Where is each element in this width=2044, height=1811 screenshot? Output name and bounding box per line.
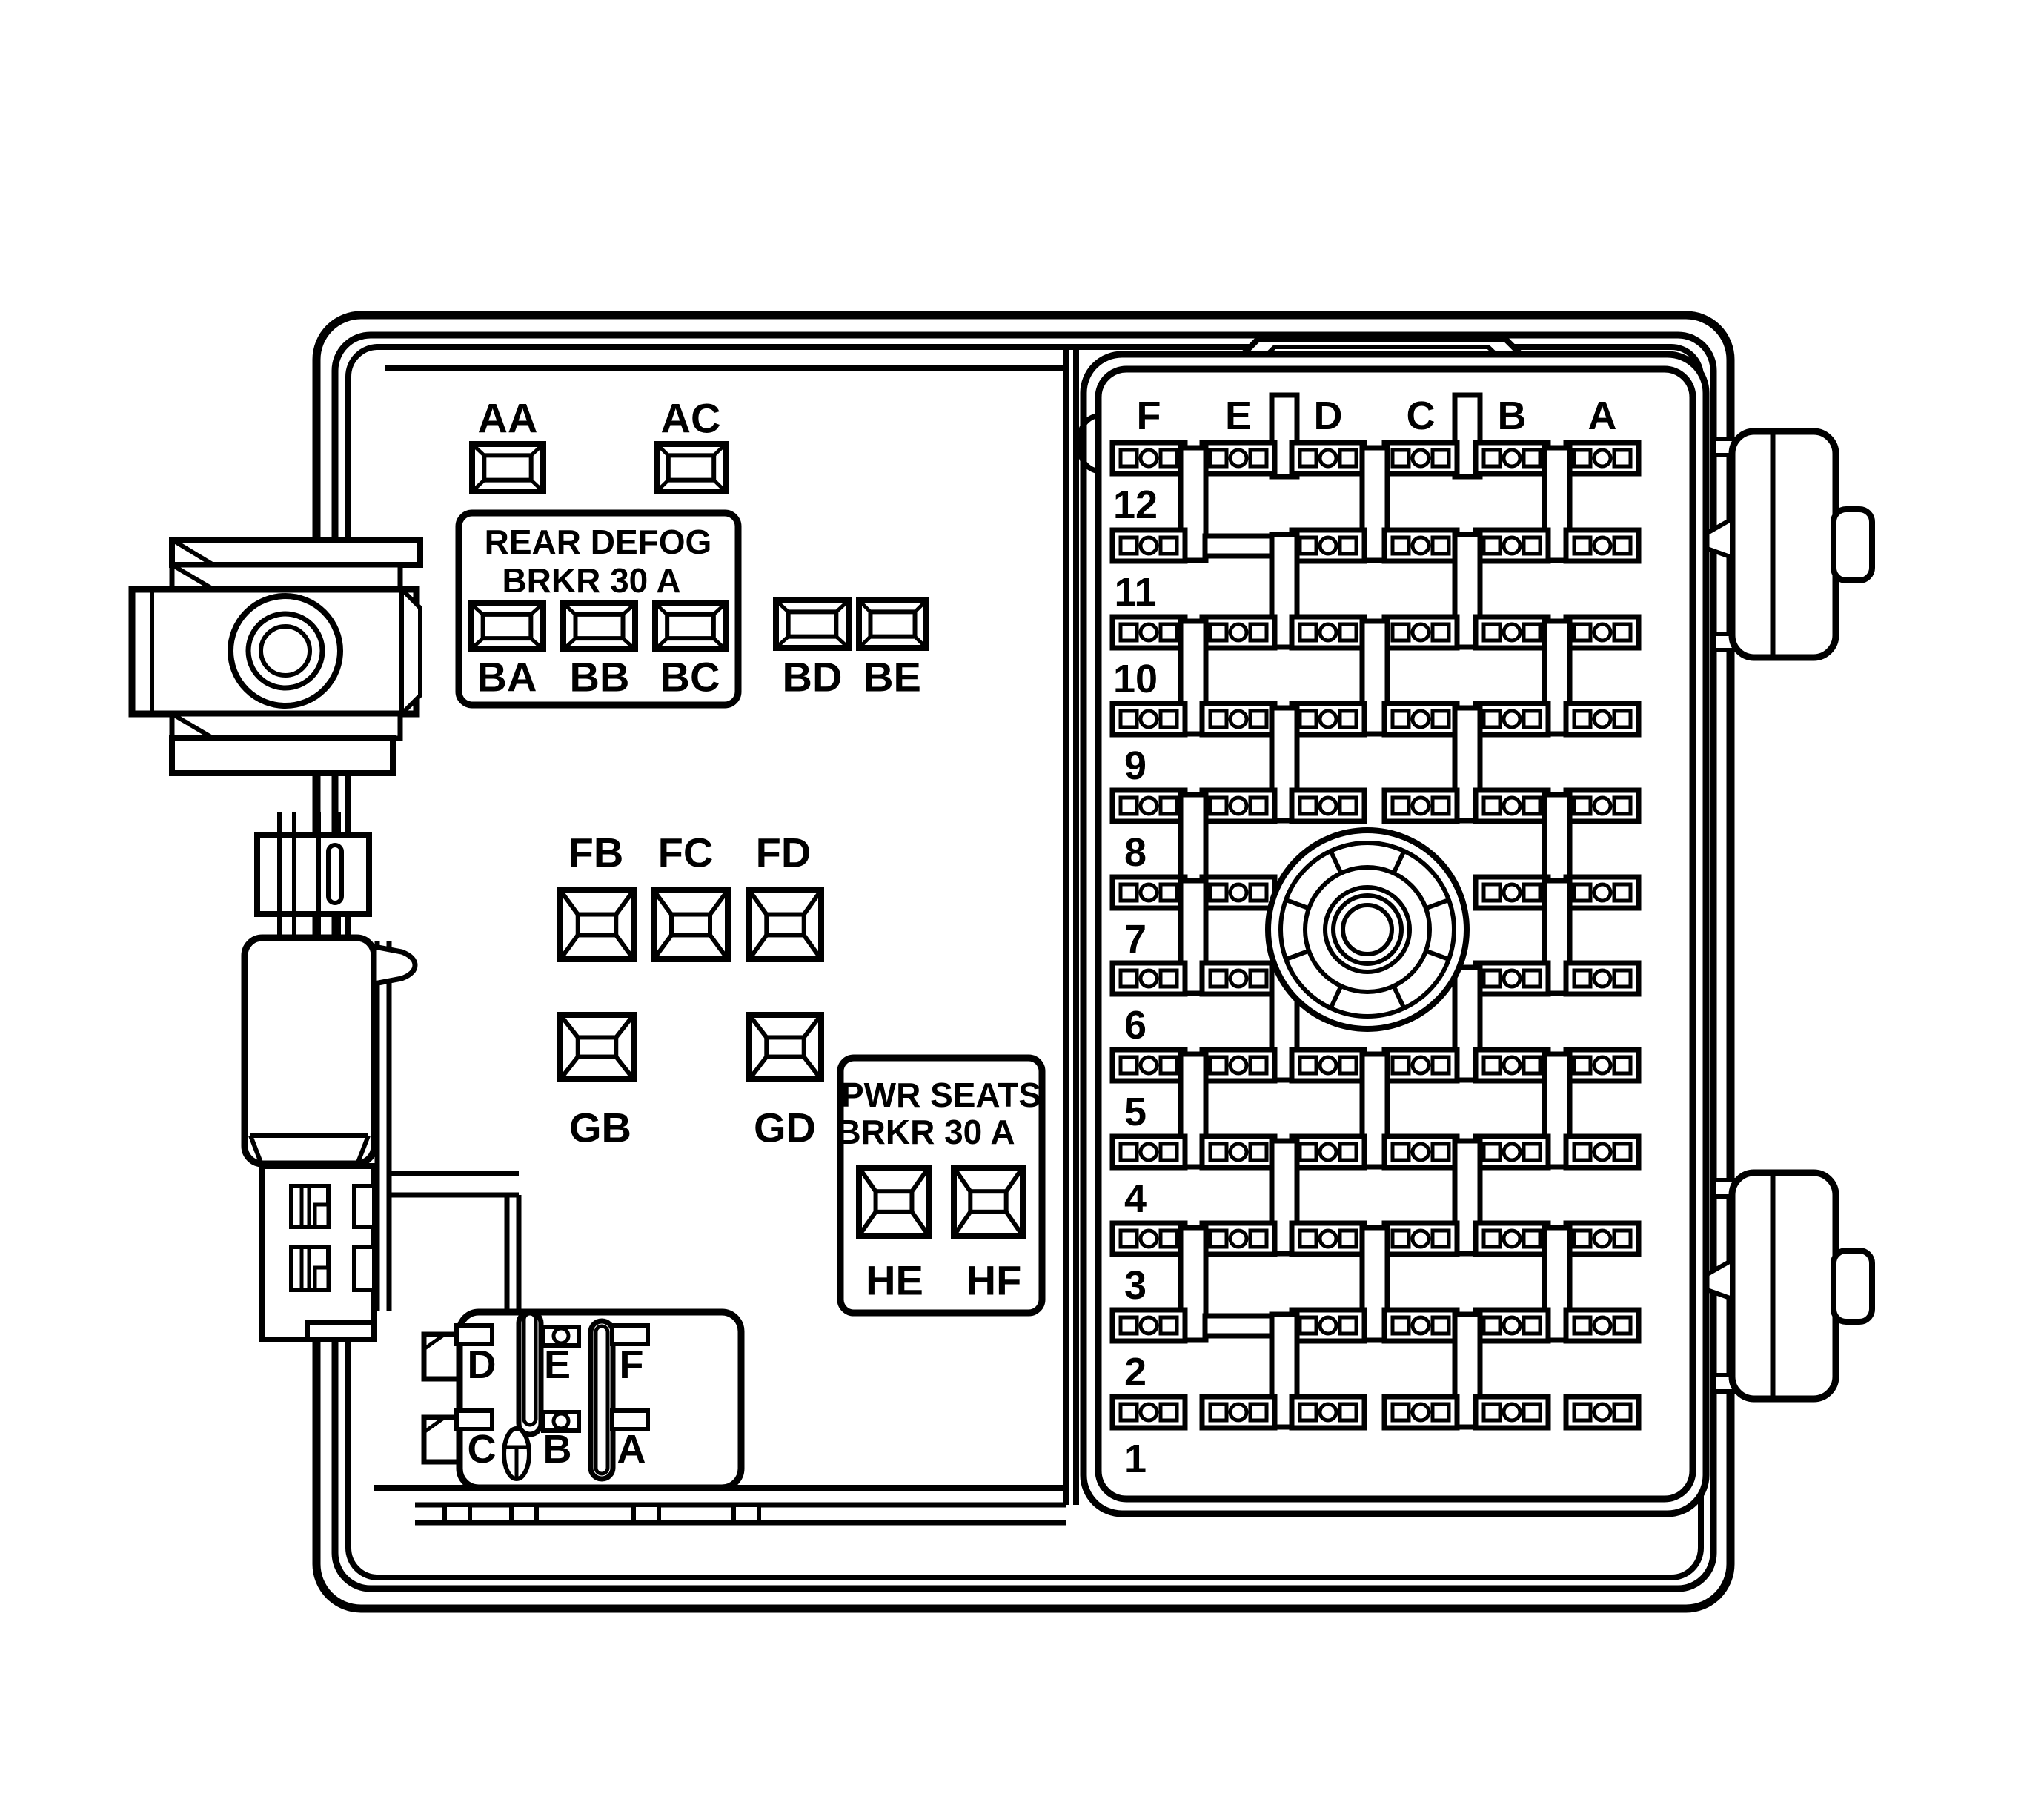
fuse-end [1614,1057,1630,1073]
fuse-end [1210,798,1227,814]
fuse-end [1524,537,1540,554]
fuse-end [1393,1231,1409,1247]
fuse-end [1121,798,1137,814]
terminal-subsquare [315,1205,328,1227]
relay-label: BA [477,654,537,701]
connector-def: DEFCBA [424,1312,741,1488]
fuse-symbol [1202,703,1275,735]
bolt-boss-icon [1268,830,1467,1029]
fuse-element [1504,970,1520,987]
fuse-column-label: F [1137,394,1161,438]
fuse-column-label: D [1314,394,1343,438]
fuse-element [1594,798,1610,814]
fuse-element [1141,624,1157,640]
relay-HE: HE [859,1168,929,1304]
fuse-end [1393,624,1409,640]
fuse-end [1210,884,1227,901]
fuse-end [1484,1404,1500,1420]
fuse-element [1504,1144,1520,1160]
fuse-element [1230,798,1247,814]
fuse-element [1320,537,1336,554]
fuse-element [1594,1404,1610,1420]
fuse-end [1161,1144,1177,1160]
fuse-end [1300,1057,1316,1073]
latch-body [1732,431,1836,658]
rear-defog-title-line1: REAR DEFOG [485,523,712,561]
fuse-element [1230,624,1247,640]
relay-label: GD [754,1105,816,1151]
fuse-symbol [1384,790,1457,821]
fuse-element [1141,1404,1157,1420]
fuse-row-label: 5 [1124,1090,1147,1134]
mounting-bracket [132,540,420,773]
fuse-symbol [1384,443,1457,474]
fuse-end [1340,537,1356,554]
fuse-element [1320,711,1336,727]
fuse-end [1121,1231,1137,1247]
fuse-end [1121,711,1137,727]
fuse-end [1250,884,1267,901]
fuse-symbol [1202,617,1275,648]
relay-inner [870,612,915,636]
relay-BD: BD [776,600,849,701]
fuse-end [1524,1404,1540,1420]
relay-label: FB [568,830,624,876]
fuse-symbol [1112,703,1185,735]
terminal-block-tab [308,1322,373,1340]
fuse-end [1393,537,1409,554]
fuse-symbol [1202,1050,1275,1081]
fuse-end [1524,624,1540,640]
fuse-end [1210,1404,1227,1420]
blank-slot [1205,536,1272,556]
fuse-end [1121,624,1137,640]
fuse-symbol [1112,1397,1185,1428]
fuse-element [1141,450,1157,466]
fuse-end [1614,1144,1630,1160]
fuse-symbol [1292,617,1364,648]
fuse-symbol [1384,1136,1457,1168]
latch-body [1732,1173,1836,1399]
relay-BB: BB [563,603,635,701]
fuse-row-label: 1 [1124,1437,1147,1481]
fuse-symbol [1476,1050,1548,1081]
fuse-row-label: 9 [1124,744,1147,788]
fuse-end [1300,1404,1316,1420]
fuse-end [1574,798,1590,814]
fuse-end [1484,624,1500,640]
fuse-element [1413,1231,1429,1247]
fuse-symbol [1202,1223,1275,1254]
fuse-end [1340,1404,1356,1420]
fuse-end [1210,711,1227,727]
fuse-element [1230,1144,1247,1160]
fuse-end [1300,798,1316,814]
fuse-symbol [1384,1397,1457,1428]
fuse-end [1614,1404,1630,1420]
fuse-end [1161,624,1177,640]
fuse-symbol [1476,617,1548,648]
relay-inner [671,915,710,936]
bottom-band-tab [445,1505,470,1523]
fuse-symbol [1112,530,1185,561]
fuse-end [1484,450,1500,466]
fuse-end [1161,1231,1177,1247]
fuse-end [1574,1144,1590,1160]
fuse-element [1594,884,1610,901]
relay-label: BB [570,654,630,701]
fuse-end [1574,1317,1590,1334]
boss-ring [1343,905,1392,954]
pwr-seats-title-line1: PWR SEATS [841,1076,1041,1114]
relay-label: HF [966,1257,1022,1304]
fuse-element [1141,1057,1157,1073]
fuse-end [1121,1404,1137,1420]
fuse-end [1300,624,1316,640]
fuse-element [1504,1317,1520,1334]
fuse-element [1141,711,1157,727]
fuse-element [1594,1231,1610,1247]
fuse-row-label: 12 [1113,483,1158,527]
fuse-element [1230,884,1247,901]
fuse-element [1413,1057,1429,1073]
slat-block [257,835,369,914]
fuse-symbol [1566,963,1639,994]
fuse-end [1300,1144,1316,1160]
terminal-subsquare [315,1268,328,1290]
fuse-end [1210,1144,1227,1160]
fuse-element [1504,798,1520,814]
connector-letter: E [544,1342,571,1387]
fuse-end [1433,1231,1449,1247]
fuse-row-label: 4 [1124,1176,1147,1221]
fuse-symbol [1112,790,1185,821]
fuse-element [1230,1057,1247,1073]
fuse-end [1433,450,1449,466]
fuse-end [1524,1317,1540,1334]
fuse-element [1504,1231,1520,1247]
relay-label: AA [478,395,538,442]
fuse-end [1250,711,1267,727]
relay-inner [578,915,616,936]
relay-BE: BE [859,600,926,701]
fuse-end [1574,970,1590,987]
fuse-symbol [1476,443,1548,474]
fuse-end [1614,450,1630,466]
relay-label: FC [658,830,714,876]
fuse-symbol [1384,1050,1457,1081]
fuse-end [1433,1317,1449,1334]
fuse-symbol [1566,703,1639,735]
fuse-end [1574,624,1590,640]
fuse-symbol [1292,530,1364,561]
fuse-symbol [1202,790,1275,821]
relay-label: BD [783,654,843,701]
fuse-symbol [1566,1136,1639,1168]
relay-inner [970,1191,1006,1212]
fuse-end [1433,624,1449,640]
fuse-element [1504,624,1520,640]
fuse-element [1413,1144,1429,1160]
fuse-end [1340,1144,1356,1160]
fuse-end [1574,884,1590,901]
fuse-panel: FEDCBA121110987654321 [1079,354,1706,1514]
fuse-symbol [1112,1310,1185,1341]
relay-inner [789,612,837,636]
fuse-element [1413,711,1429,727]
relay-FD: FD [749,830,821,959]
relay-BC: BC [655,603,726,701]
fuse-end [1433,1144,1449,1160]
fuse-end [1524,1144,1540,1160]
fuse-end [1210,450,1227,466]
fuse-end [1574,1231,1590,1247]
connector-letter: D [468,1342,497,1387]
fuse-end [1300,450,1316,466]
fuse-symbol [1202,1136,1275,1168]
fuse-end [1524,798,1540,814]
fuse-element [1504,884,1520,901]
relay-inner [667,615,714,638]
fuse-end [1574,1057,1590,1073]
relay-AC: AC [657,395,726,491]
fuse-end [1121,1057,1137,1073]
fuse-symbol [1476,1397,1548,1428]
diagram-canvas: DEFCBA REAR DEFOG BRKR 30 A PWR SEATS BR… [0,0,2044,1811]
fuse-end [1574,450,1590,466]
fuse-end [1614,970,1630,987]
fuse-end [1340,624,1356,640]
fuse-end [1161,798,1177,814]
fuse-element [1320,1404,1336,1420]
fuse-end [1433,537,1449,554]
fuse-element [1320,1317,1336,1334]
fuse-element [1594,624,1610,640]
pwr-seats-title-line2: BRKR 30 A [836,1113,1015,1151]
fuse-end [1300,711,1316,727]
fuse-element [1413,450,1429,466]
relay-inner [668,455,714,480]
fuse-symbol [1202,963,1275,994]
relay-label: BE [863,654,921,701]
fuse-symbol [1384,703,1457,735]
fuse-element [1413,537,1429,554]
fuse-symbol [1292,1136,1364,1168]
fuse-end [1614,711,1630,727]
fuse-element [1141,1144,1157,1160]
fuse-element [1141,970,1157,987]
fuse-column-label: A [1588,394,1617,438]
fuse-end [1614,1317,1630,1334]
fuse-element [1320,1057,1336,1073]
connector-wing [424,1334,459,1379]
fuse-end [1161,1404,1177,1420]
round-block [245,938,374,1164]
fuse-end [1484,711,1500,727]
fuse-end [1210,624,1227,640]
fuse-element [1141,537,1157,554]
capsule-slot-inner [596,1326,608,1474]
fuse-end [1393,1144,1409,1160]
relay-BA: BA [471,603,543,701]
fuse-symbol [1566,1397,1639,1428]
fuse-end [1484,1231,1500,1247]
bottom-band-tab [634,1505,659,1523]
capsule-slot-inner [524,1314,536,1425]
fuse-element [1141,798,1157,814]
fuse-symbol [1476,1223,1548,1254]
fuse-row-label: 6 [1124,1003,1147,1047]
relay-inner [484,455,531,480]
fuse-end [1484,798,1500,814]
fuse-end [1210,1231,1227,1247]
fuse-end [1161,711,1177,727]
fuse-end [1614,798,1630,814]
fuse-row-label: 10 [1113,657,1158,701]
fuse-end [1524,1057,1540,1073]
fuse-symbol [1384,1310,1457,1341]
fuse-end [1484,537,1500,554]
fuse-end [1340,798,1356,814]
latch-knob [1834,509,1872,580]
relay-label: FD [756,830,812,876]
relay-AA: AA [472,395,543,491]
fuse-column-label: B [1498,394,1527,438]
fuse-end [1433,711,1449,727]
grommet-hole-icon [261,626,310,675]
fuse-symbol [1292,790,1364,821]
fuse-symbol [1112,1223,1185,1254]
fuse-end [1524,884,1540,901]
fuse-row-label: 2 [1124,1350,1147,1394]
fuse-symbol [1202,1397,1275,1428]
connector-letter: C [468,1427,497,1471]
bracket-flange-bottom [172,738,393,773]
relay-inner [766,1037,803,1056]
fuse-end [1524,450,1540,466]
fuse-end [1250,1144,1267,1160]
connector-terminal [457,1325,492,1344]
fuse-end [1161,970,1177,987]
fuse-end [1614,1231,1630,1247]
fuse-row-label: 8 [1124,830,1147,875]
fuse-end [1121,1317,1137,1334]
fuse-end [1340,711,1356,727]
fuse-end [1340,1317,1356,1334]
fuse-element [1230,970,1247,987]
fuse-end [1484,1057,1500,1073]
fuse-end [1161,1317,1177,1334]
fuse-element [1594,711,1610,727]
fuse-symbol [1384,617,1457,648]
connector-letter: F [620,1342,644,1387]
fuse-symbol [1476,877,1548,908]
fuse-end [1524,1231,1540,1247]
fuse-end [1484,1144,1500,1160]
fuse-end [1161,537,1177,554]
fuse-end [1161,884,1177,901]
fuse-symbol [1112,443,1185,474]
fuse-element [1504,1057,1520,1073]
fuse-end [1161,1057,1177,1073]
fuse-row-label: 7 [1124,917,1147,961]
connector-letter: A [617,1427,646,1471]
fuse-end [1340,1231,1356,1247]
fuse-end [1574,537,1590,554]
fuse-end [1614,537,1630,554]
fuse-symbol [1566,877,1639,908]
fuse-element [1413,1404,1429,1420]
fuse-symbol [1566,443,1639,474]
fuse-element [1594,450,1610,466]
relay-label: AC [661,395,721,442]
connector-wing [424,1417,459,1462]
fuse-end [1210,1057,1227,1073]
fuse-end [1393,450,1409,466]
fuse-end [1250,450,1267,466]
fuse-end [1393,1317,1409,1334]
fuse-grid: FEDCBA121110987654321 [1112,394,1639,1481]
fuse-end [1614,884,1630,901]
fuse-symbol [1566,617,1639,648]
fuse-symbol [1476,1136,1548,1168]
fuse-symbol [1566,1050,1639,1081]
fuse-element [1413,1317,1429,1334]
fuse-symbol [1112,1136,1185,1168]
fuse-element [1230,1404,1247,1420]
bottom-band-tab [511,1505,537,1523]
fuse-symbol [1112,1050,1185,1081]
fuse-symbol [1476,703,1548,735]
terminal-square [354,1247,374,1290]
fuse-element [1230,450,1247,466]
fuse-end [1574,711,1590,727]
fuse-symbol [1566,1310,1639,1341]
fuse-symbol [1292,1050,1364,1081]
fuse-end [1484,970,1500,987]
fuse-row-label: 3 [1124,1263,1147,1308]
fuse-column-label: E [1225,394,1252,438]
relay-inner [575,615,623,638]
fuse-element [1141,1231,1157,1247]
relay-label: BC [660,654,720,701]
fuse-end [1250,1231,1267,1247]
fuse-end [1340,1057,1356,1073]
bracket-taper [402,589,420,714]
fuse-element [1320,1231,1336,1247]
fuse-element [1230,1231,1247,1247]
fuse-symbol [1202,443,1275,474]
fuse-element [1230,711,1247,727]
fuse-end [1524,711,1540,727]
fuse-end [1250,798,1267,814]
fuse-element [1320,624,1336,640]
fuse-element [1504,450,1520,466]
fuse-symbol [1384,1223,1457,1254]
fuse-end [1161,450,1177,466]
fuse-element [1320,798,1336,814]
fuse-symbol [1476,963,1548,994]
fuse-element [1141,1317,1157,1334]
fuse-end [1121,1144,1137,1160]
fuse-element [1594,1317,1610,1334]
fuse-element [1320,1144,1336,1160]
fuse-end [1484,1317,1500,1334]
fuse-end [1300,537,1316,554]
fuse-column-label: C [1407,394,1436,438]
fuse-symbol [1476,1310,1548,1341]
fuse-end [1300,1317,1316,1334]
